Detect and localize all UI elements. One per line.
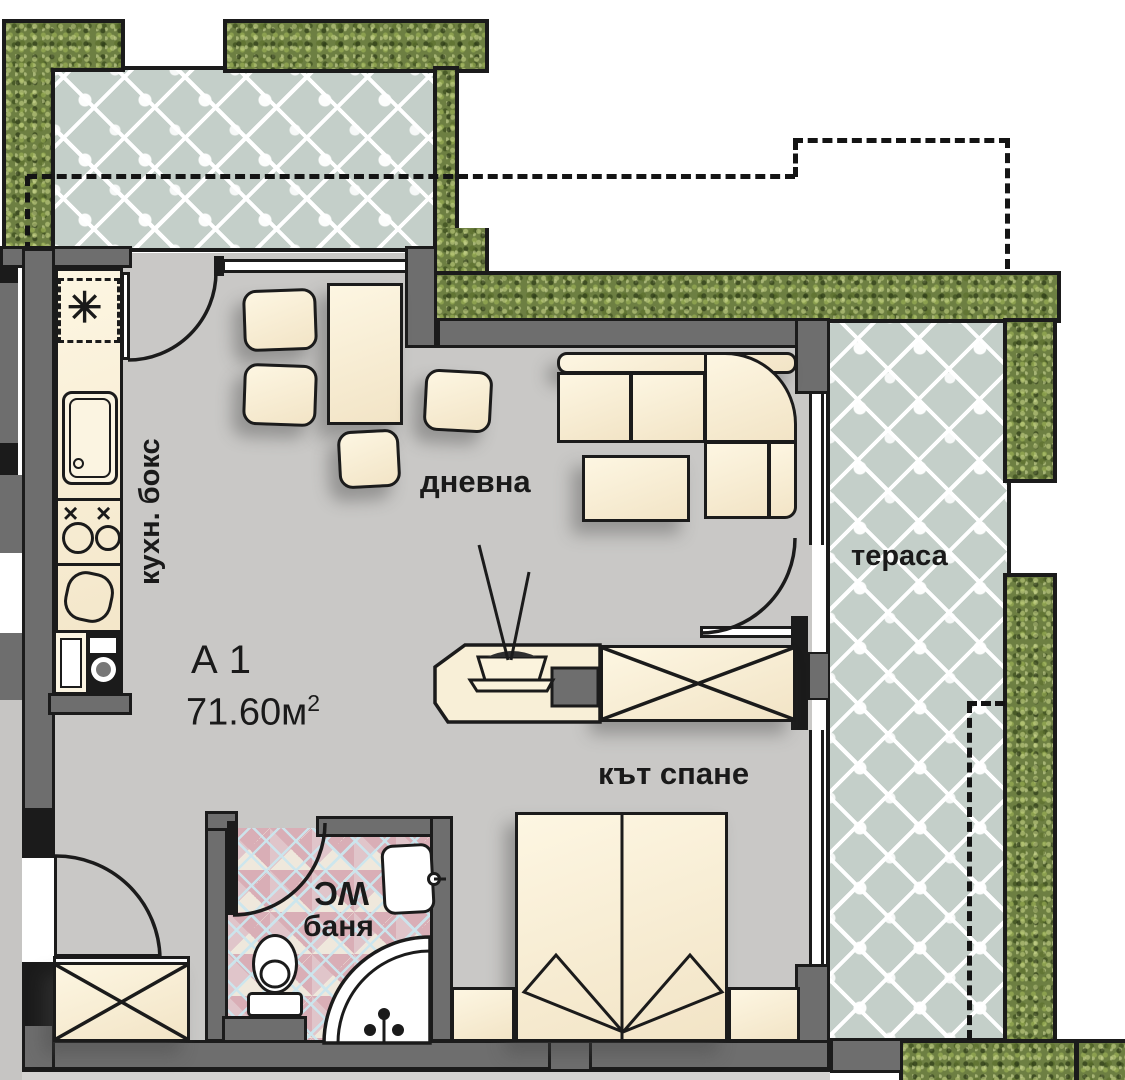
wall-north-band: [437, 318, 799, 348]
double-bed: [515, 812, 728, 1042]
outer-wall-segment: [0, 475, 22, 553]
dashed-boundary-north: [793, 138, 1009, 143]
washer-left-panel: [60, 638, 82, 688]
grass-north-blob: [437, 228, 485, 277]
dining-chair: [242, 288, 318, 353]
window-terrace-upper: [809, 394, 824, 545]
outer-wall-segment: [0, 283, 18, 443]
toilet-bowl: [252, 934, 298, 994]
grass-northeast-strip: [437, 275, 1057, 319]
entry-wardrobe: [53, 962, 190, 1042]
outer-column: [0, 443, 18, 475]
window-terrace-lower: [809, 730, 824, 966]
dashed-boundary-step: [793, 140, 798, 177]
wall-kitchen-stub: [48, 693, 132, 715]
label-wc: WC: [314, 874, 369, 912]
wall-west-block: [22, 962, 55, 1026]
dining-chair: [337, 428, 402, 489]
label-unit-area: 71.60м2: [186, 690, 320, 735]
dining-chair: [422, 368, 493, 433]
bath-door-jamb: [227, 821, 238, 915]
counter-divider: [55, 563, 123, 566]
label-living-room: дневна: [420, 464, 531, 500]
toilet-tank: [247, 992, 303, 1017]
floor-plan: ✳ × ×: [0, 0, 1125, 1080]
washer-drum-inner: [96, 662, 111, 677]
washing-machine: [53, 630, 123, 695]
nightstand: [451, 987, 515, 1042]
grass-southeast-divider: [1074, 1043, 1079, 1080]
label-terrace: тераса: [851, 540, 948, 573]
wall-south-bedroom-east: [830, 1038, 903, 1073]
dining-chair: [242, 363, 318, 428]
label-bathroom: баня: [303, 910, 374, 944]
label-kitchen: кухн. бокс: [134, 438, 167, 585]
dashed-boundary-west: [27, 174, 795, 179]
fridge-star-icon: ✳: [67, 283, 102, 332]
bathroom-sink: [380, 843, 436, 916]
sofa-seat-vertical: [704, 441, 770, 519]
wall-west-upper: [22, 248, 55, 858]
terrace-north: [55, 70, 437, 248]
wall-north-kitchen: [0, 246, 132, 268]
area-superscript: 2: [307, 690, 320, 716]
nightstand: [728, 987, 800, 1042]
wall-column-ne2: [795, 318, 830, 394]
dashed-terrace-inner-v: [967, 703, 972, 1040]
label-sleeping-nook: кът спане: [598, 756, 749, 792]
outside-ground: [0, 700, 22, 1080]
coffee-table: [582, 455, 690, 522]
grass-east-upper: [1007, 322, 1053, 479]
kitchen-sink-drain: [73, 458, 84, 469]
terrace-door-leaf: [700, 626, 796, 638]
sofa-armrest: [768, 441, 797, 519]
dashed-terrace-inner-h: [967, 701, 1005, 706]
fridge: ✳: [58, 278, 120, 343]
wall-column-ne1: [405, 246, 437, 348]
wall-mullion-gray: [808, 652, 830, 700]
grass-east-lower: [1007, 577, 1053, 1042]
washer-detergent-tray: [90, 638, 116, 653]
dining-table: [327, 283, 403, 425]
sofa-seat: [630, 372, 706, 443]
wall-bath-west: [205, 813, 228, 1042]
dashed-boundary-west-drop: [25, 176, 30, 252]
hob-burner: [95, 525, 121, 551]
sofa-seat: [557, 372, 632, 443]
washer-drum: [91, 657, 116, 682]
grass-southeast: [903, 1043, 1125, 1080]
toilet-base-cabinet: [222, 1016, 307, 1043]
tv-console: [600, 645, 796, 722]
balcony-sliding-door: [222, 259, 408, 273]
grass-north: [227, 23, 485, 69]
hob-burner: [62, 522, 94, 554]
entry-opening-edge: [54, 857, 57, 963]
wall-west-block: [22, 808, 55, 858]
wall-south-notch: [548, 1040, 592, 1072]
dashed-boundary-east: [1005, 138, 1010, 269]
area-value: 71.60м: [186, 692, 307, 734]
label-unit-title: А 1: [191, 638, 251, 683]
outer-wall-segment: [0, 633, 22, 700]
wall-bath-east: [430, 816, 453, 1042]
wall-south: [22, 1040, 830, 1070]
terrace-east: [830, 318, 1007, 1038]
kitchen-sink: [62, 391, 118, 485]
neighbor-strip-south: [22, 1070, 830, 1080]
